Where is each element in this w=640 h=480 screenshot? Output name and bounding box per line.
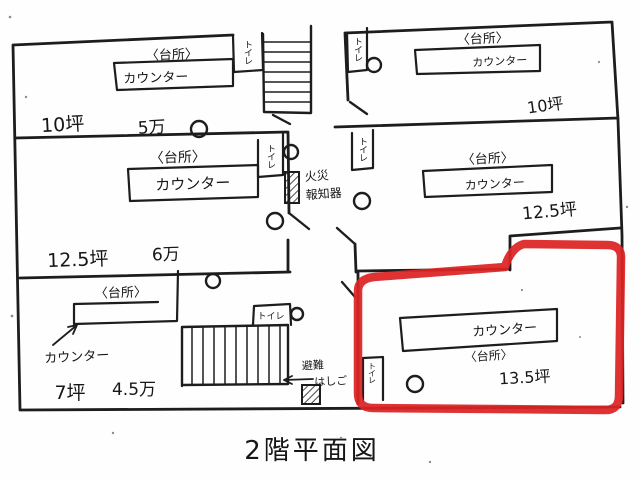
area-label: 13.5坪 (498, 367, 551, 389)
evacuation-ladder: 避難 はしご (284, 357, 348, 404)
toilet-label: トイレ (265, 144, 276, 168)
kitchen-label: 〈台所〉 (456, 31, 509, 49)
counter-label: カウンター (464, 175, 525, 192)
staircase-top (263, 26, 311, 113)
caption: 2階平面図 (244, 436, 380, 466)
toilet-label: トイレ (368, 362, 377, 383)
area-label: 12.5坪 (47, 248, 109, 272)
area-label: 10坪 (41, 113, 85, 137)
detector-circle (206, 274, 220, 288)
kitchen-label: 〈台所〉 (464, 346, 513, 364)
detector-circle (284, 145, 298, 159)
evac-label: 避難 (301, 357, 324, 372)
fire-alarm-label: 報知器 (305, 186, 342, 202)
floor-plan-drawing: トイレ トイレ トイレ トイレ トイレ トイレ 〈台所〉 カウンター 10坪 5… (0, 0, 640, 480)
toilet-label: トイレ (357, 137, 368, 161)
counter-label: カウンター (44, 348, 110, 366)
toilet-label: トイレ (352, 37, 363, 61)
evac-label: はしご (314, 373, 348, 389)
counter-label: カウンター (472, 321, 538, 340)
fire-alarm-box (285, 172, 299, 203)
staircase-bottom (182, 325, 288, 386)
kitchen-label: 〈台所〉 (95, 285, 148, 302)
detector-circle (291, 308, 303, 320)
detector-circle (407, 376, 423, 392)
area-label: 10坪 (526, 94, 565, 118)
counter-label: カウンター (123, 70, 188, 87)
room-labels: 〈台所〉 カウンター 10坪 5万 〈台所〉 カウンター 12.5坪 6万 〈台… (41, 31, 578, 404)
counter-label: カウンター (472, 54, 528, 70)
rent-label: 6万 (152, 245, 181, 266)
fire-alarm-label: 火災 (304, 168, 329, 184)
counter-arrow (53, 325, 77, 345)
rent-label: 4.5万 (112, 380, 156, 400)
detector-circle (354, 193, 370, 209)
evac-arrow (284, 376, 313, 384)
floor-plan-page: トイレ トイレ トイレ トイレ トイレ トイレ 〈台所〉 カウンター 10坪 5… (0, 0, 640, 480)
area-label: 12.5坪 (521, 200, 577, 225)
kitchen-label: 〈台所〉 (146, 47, 199, 64)
rent-label: 5万 (137, 117, 166, 138)
kitchen-label: 〈台所〉 (461, 151, 514, 169)
kitchen-label: 〈台所〉 (150, 149, 207, 167)
detector-circles (191, 58, 423, 392)
counter-label: カウンター (155, 174, 231, 195)
detector-circle (367, 58, 381, 72)
detector-circle (267, 213, 283, 229)
toilet-label: トイレ (242, 40, 253, 64)
area-label: 7坪 (54, 382, 85, 404)
toilet-label: トイレ (257, 312, 284, 322)
fire-alarm: 火災 報知器 (285, 168, 342, 203)
